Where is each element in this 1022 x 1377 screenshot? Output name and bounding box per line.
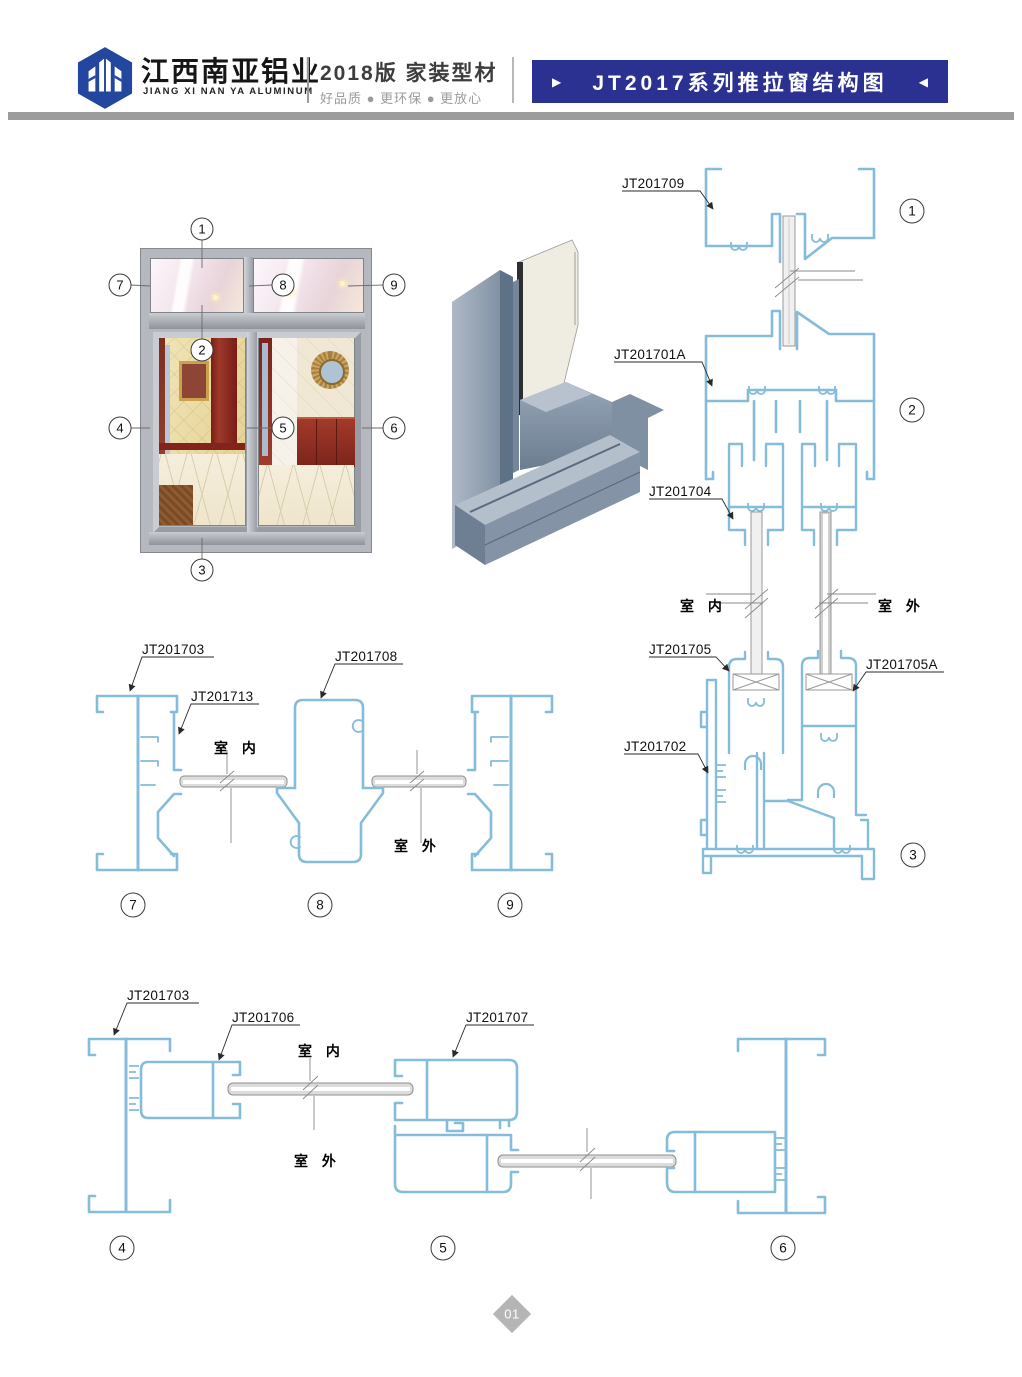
profile-3d-render [452, 240, 664, 565]
part-label-jt201703-bottom: JT201703 [127, 988, 189, 1003]
section-marker-9: 9 [498, 893, 523, 918]
part-label-jt201705a: JT201705A [866, 657, 938, 672]
line-art [0, 0, 1022, 1377]
part-label-jt201704: JT201704 [649, 484, 711, 499]
photo-callout-6: 6 [383, 417, 406, 440]
photo-callout-8: 8 [272, 274, 295, 297]
section-marker-3: 3 [901, 843, 926, 868]
section-marker-7: 7 [121, 893, 146, 918]
section-marker-5: 5 [431, 1236, 456, 1261]
photo-callout-5: 5 [272, 417, 295, 440]
page-number-badge: 01 [493, 1295, 531, 1333]
photo-callout-9: 9 [383, 274, 406, 297]
photo-callout-1: 1 [191, 218, 214, 241]
horizontal-section-mid-art [97, 657, 552, 870]
photo-callout-3: 3 [191, 559, 214, 582]
outdoor-label-mid: 室 外 [394, 836, 441, 856]
part-label-jt201702: JT201702 [624, 739, 686, 754]
page-number: 01 [499, 1301, 526, 1328]
outdoor-label-vertical: 室 外 [878, 596, 925, 616]
indoor-label-bottom: 室 内 [298, 1041, 345, 1061]
photo-callout-leaders [131, 240, 383, 559]
section-marker-6: 6 [771, 1236, 796, 1261]
section-marker-1: 1 [900, 199, 925, 224]
horizontal-section-bottom-art [89, 1003, 825, 1213]
indoor-label-vertical: 室 内 [680, 596, 727, 616]
part-label-jt201713: JT201713 [191, 689, 253, 704]
part-label-jt201701a: JT201701A [614, 347, 686, 362]
photo-callout-7: 7 [109, 274, 132, 297]
vertical-section-art [614, 169, 944, 879]
part-label-jt201703-mid: JT201703 [142, 642, 204, 657]
indoor-label-mid: 室 内 [214, 738, 261, 758]
part-label-jt201707: JT201707 [466, 1010, 528, 1025]
section-marker-8: 8 [308, 893, 333, 918]
page: 江西南亚铝业 JIANG XI NAN YA ALUMINUM 2018版 家装… [0, 0, 1022, 1377]
part-label-jt201705: JT201705 [649, 642, 711, 657]
part-label-jt201709: JT201709 [622, 176, 684, 191]
part-label-jt201708: JT201708 [335, 649, 397, 664]
part-label-jt201706: JT201706 [232, 1010, 294, 1025]
outdoor-label-bottom: 室 外 [294, 1151, 341, 1171]
photo-callout-4: 4 [109, 417, 132, 440]
section-marker-4: 4 [110, 1236, 135, 1261]
section-marker-2: 2 [900, 398, 925, 423]
photo-callout-2: 2 [191, 339, 214, 362]
